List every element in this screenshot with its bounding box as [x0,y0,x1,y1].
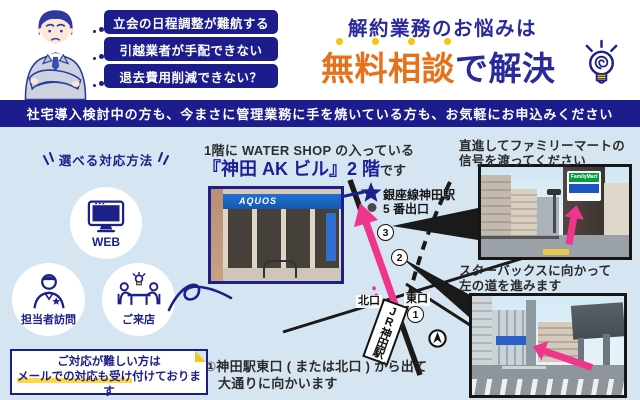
map-step-1: 1 [407,306,424,323]
familymart-sign-text: FamilyMart [569,173,599,182]
familymart-sign-lower [569,184,599,193]
destination-star-icon [361,182,382,202]
meeting-icon [117,272,161,310]
elevated-highway [571,302,625,340]
traffic-light [547,189,561,195]
east-exit-label: 東口 [404,293,430,306]
blue-shop-sign [496,336,526,345]
building-tail: です [380,163,406,178]
step3-line2: 左の道を進みます [459,275,561,294]
bicycle-shape [263,260,297,278]
monitor-icon [85,198,127,234]
method-store-label: ご来店 [122,311,155,327]
step1-line2: 大通りに向かいます [218,373,338,392]
subway-exit-label: 5 番出口 [383,200,429,217]
map-step-3: 3 [377,224,394,241]
compass-icon [427,328,448,349]
map-step-2: 2 [391,249,408,266]
signal-pole [553,193,556,233]
step2-line2: 信号を渡ってください [459,150,586,169]
note-line2: メールでの対応も受け付けております [12,370,206,400]
building-name: 『神田 AK ビル』2 階 [203,159,380,179]
subway-exit-dot [368,203,377,212]
familymart-sign: FamilyMart [567,171,601,201]
vertical-banner [326,213,336,261]
method-store: ご来店 [102,263,175,336]
building-note-line2: 『神田 AK ビル』2 階です [203,155,406,181]
note-highlight: メールでの対応も受け [17,371,132,383]
tactile-paving [543,249,569,255]
north-exit-label: 北口 [356,295,382,308]
highway-pillar [603,334,610,368]
building-left [481,175,511,237]
photo-familymart-crossing: FamilyMart [478,164,632,260]
note-line1: ご対応が難しい方は [12,355,206,370]
building-left [472,296,492,374]
building-mid [511,189,537,235]
access-map-flyer: 立会の日程調整が難航する 引越業者が手配できない 退去費用削減できない？ 解約業… [0,0,640,400]
method-visit: 担当者訪問 [12,263,85,336]
photo-storefront: AQUOS [208,186,344,284]
guardrail [481,236,559,239]
photo-starbucks-street [469,293,627,398]
method-web-label: WEB [92,235,120,249]
visitor-icon [29,272,69,310]
aquos-sign: AQUOS [223,194,344,209]
method-web: WEB [70,187,142,259]
median [502,366,546,369]
method-visit-label: 担当者訪問 [21,311,76,327]
mail-support-note: ご対応が難しい方は メールでの対応も受け付けております [10,349,208,395]
building-column [211,189,223,281]
crosswalk [472,379,624,395]
